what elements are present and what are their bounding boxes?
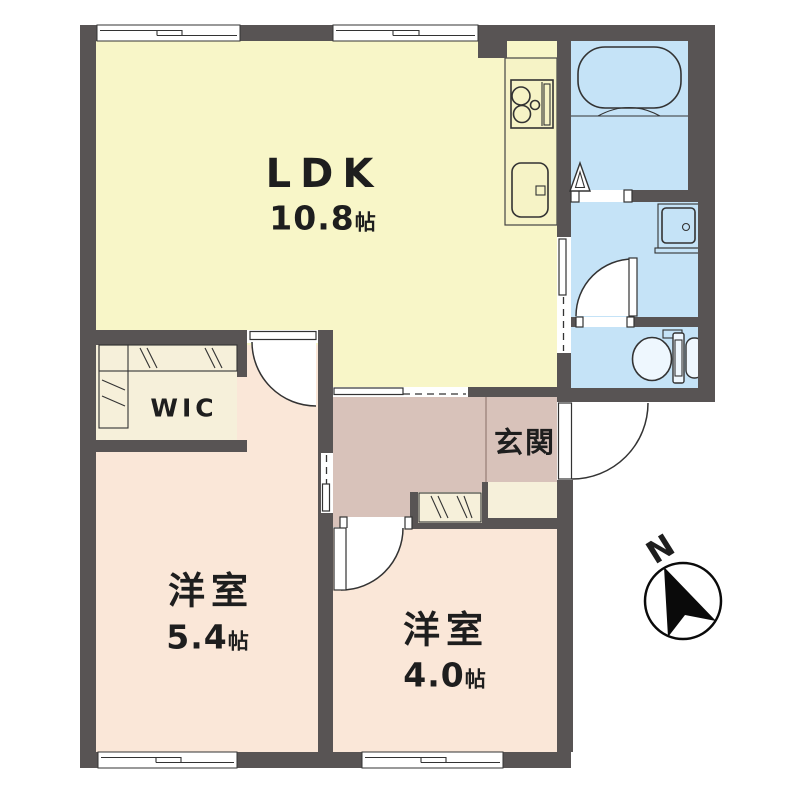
bedroom1-size-unit: 帖 [228,630,250,654]
bedroom1-size-number: 5.4 [166,618,227,657]
shoe-cabinet [488,482,557,518]
wall-hall-washroom [557,353,571,402]
wall-ldk-hall [468,387,557,397]
window-bedroom1 [98,752,237,768]
wall-right-upper [698,25,715,402]
ldk-size-number: 10.8 [269,199,354,238]
bedroom2-size-label: 4.0帖 [403,659,486,692]
sliding-door-ldk-hall [333,387,468,397]
window-ldk-1 [97,25,240,41]
wall-closet-bottom [418,523,482,529]
wall-shoebox-bottom [488,518,557,529]
wall-bedroom1-hall [318,330,333,752]
ldk-size-label: 10.8帖 [269,202,376,235]
room-wic [96,345,237,440]
floor-plan-canvas: LDK 10.8帖 WIC 玄関 洋室 5.4帖 洋室 4.0帖 N [0,0,800,800]
wall-bath-right [688,41,700,202]
floor-plan-drawing [0,0,800,800]
wall-right-lower [557,480,573,752]
sliding-door-bedroom1 [321,453,333,513]
sliding-door-kitchen-washroom [557,237,571,353]
ldk-size-unit: 帖 [355,211,377,235]
wall-washroom-toilet-b [634,317,698,327]
wall-bathblock-bottom [557,388,715,402]
window-bedroom2 [362,752,503,768]
compass-icon [645,563,721,639]
wall-bath-washroom [632,190,698,202]
front-door [557,402,648,480]
wic-label: WIC [150,396,217,421]
wall-shoebox-stub [482,482,488,529]
wall-pillar [478,25,507,58]
bedroom2-size-number: 4.0 [403,656,464,695]
entrance-label: 玄関 [494,429,556,458]
bedroom2-size-unit: 帖 [465,668,487,692]
wall-ldk-wic [96,330,247,345]
bedroom1-label: 洋室 [168,573,254,610]
wall-wic-bottom [96,440,247,452]
wall-wic-stub [237,330,247,377]
wall-kitchen-bath [557,41,571,237]
window-ldk-2 [333,25,478,41]
ldk-label: LDK [266,154,383,194]
bedroom2-label: 洋室 [403,612,489,649]
bedroom1-size-label: 5.4帖 [166,621,249,654]
bedroom2-closet [418,492,482,523]
wall-left [80,25,96,768]
